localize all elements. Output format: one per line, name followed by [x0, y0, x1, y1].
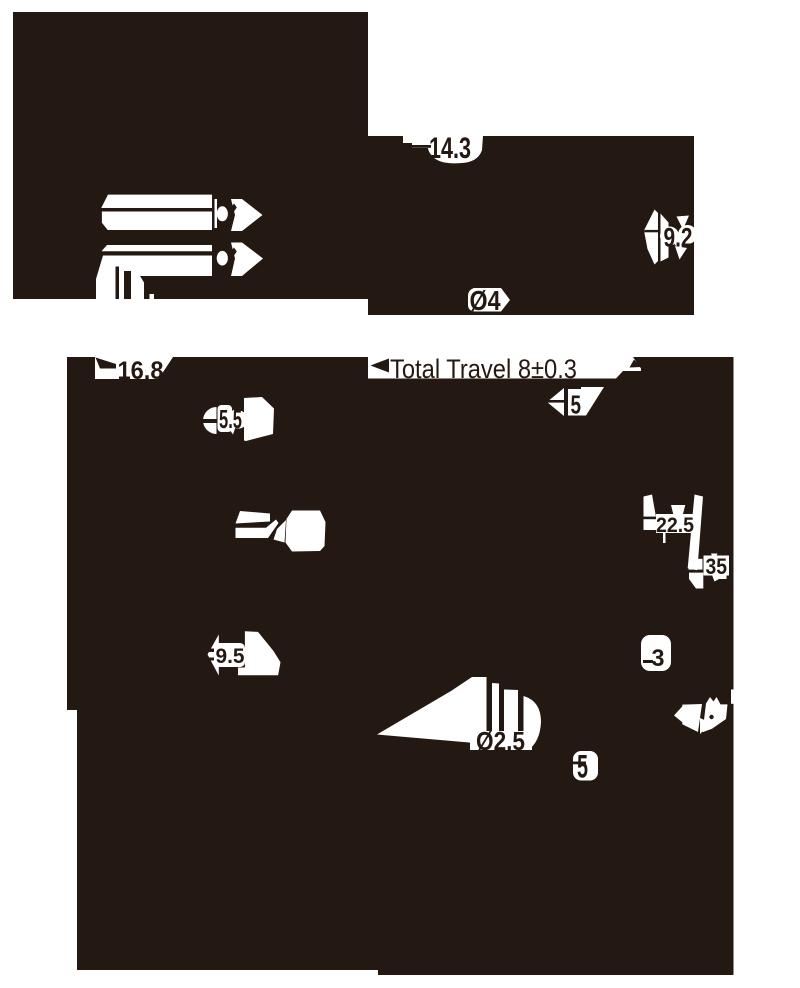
svg-text:5: 5	[571, 390, 582, 420]
svg-text:14.3: 14.3	[429, 132, 471, 165]
svg-text:16.8: 16.8	[118, 357, 164, 385]
svg-text:Total Travel 8±0.3: Total Travel 8±0.3	[390, 354, 577, 384]
svg-text:9.2: 9.2	[664, 223, 693, 253]
svg-text:3: 3	[652, 645, 665, 672]
svg-text:5: 5	[577, 749, 588, 785]
svg-text:5.5: 5.5	[219, 404, 242, 434]
svg-text:35: 35	[706, 554, 728, 579]
svg-text:Ø4: Ø4	[470, 285, 502, 316]
svg-text:9.5: 9.5	[216, 645, 245, 668]
svg-text:Ø2.5: Ø2.5	[476, 726, 525, 756]
svg-text:22.5: 22.5	[656, 514, 694, 537]
